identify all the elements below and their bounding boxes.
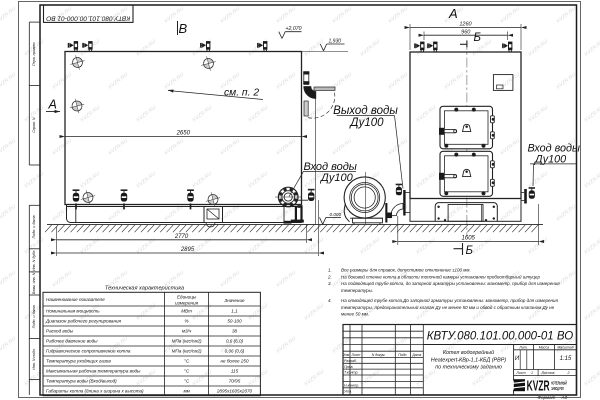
svg-text:Расход воды: Расход воды [46, 329, 74, 334]
svg-text:Масштаб: Масштаб [557, 346, 574, 350]
svg-text:Гидравлическое сопротивление к: Гидравлическое сопротивление котла [46, 349, 131, 354]
svg-text:KVZR: KVZR [527, 377, 550, 394]
svg-text:Ду100: Ду100 [319, 172, 354, 184]
svg-text:Лит.: Лит. [518, 346, 527, 350]
svg-text:Лист: Лист [515, 371, 525, 375]
svg-text:Инв. N подл.: Инв. N подл. [32, 348, 36, 370]
svg-text:2895: 2895 [180, 247, 195, 253]
svg-text:Н.контр.: Н.контр. [344, 383, 359, 387]
svg-text:Heatexpert-КВр-1,1-КБД (РВР): Heatexpert-КВр-1,1-КБД (РВР) [431, 357, 506, 363]
svg-text:ЗАВОД РЭП: ЗАВОД РЭП [551, 386, 564, 391]
svg-text:менее 50 мм.: менее 50 мм. [341, 312, 369, 317]
svg-text:2895х1605х2070: 2895х1605х2070 [216, 389, 253, 394]
svg-text:Лист: Лист [351, 353, 361, 357]
svg-text:И: И [515, 356, 520, 362]
svg-text:1,1: 1,1 [231, 309, 238, 314]
svg-text:Масса: Масса [539, 346, 549, 350]
svg-text:см. п. 2: см. п. 2 [224, 88, 259, 99]
svg-text:На отводящей трубе котла,До за: На отводящей трубе котла,До запорной арм… [341, 297, 558, 303]
svg-text:Дата: Дата [411, 353, 421, 357]
svg-text:1605: 1605 [462, 236, 476, 242]
svg-text:Температура воды (Вход/выход): Температура воды (Вход/выход) [46, 379, 117, 384]
svg-text:2.: 2. [327, 274, 332, 279]
svg-text:Инв. N дубл.: Инв. N дубл. [32, 250, 36, 271]
svg-text:1260: 1260 [459, 22, 472, 28]
svg-text:Изм.: Изм. [343, 353, 350, 357]
svg-text:2650: 2650 [176, 131, 191, 137]
svg-text:Разраб.: Разраб. [344, 359, 357, 363]
svg-text:Подп.: Подп. [398, 353, 407, 357]
svg-text:Диапазон рабочего регулировани: Диапазон рабочего регулирования [45, 319, 122, 324]
svg-text:А: А [448, 6, 458, 21]
svg-text:Подп. и дата: Подп. и дата [32, 215, 36, 238]
svg-text:Котел водогрейный: Котел водогрейный [443, 349, 494, 356]
svg-text:1.: 1. [328, 268, 332, 273]
svg-text:Подп. и дата: Подп. и дата [32, 305, 36, 328]
svg-text:Пров.: Пров. [344, 365, 353, 369]
svg-text:Габариты котла (длина х ширина: Габариты котла (длина х ширина х высота) [46, 389, 144, 394]
svg-text:4.: 4. [328, 298, 332, 303]
svg-text:м3/ч: м3/ч [182, 329, 192, 334]
svg-text:измерения: измерения [175, 300, 199, 305]
svg-text:На подводящей трубе котла, д: На подводящей трубе котла, до запорной а… [341, 280, 560, 286]
svg-text:Максимальная рабочая температу: Максимальная рабочая температура воды [46, 369, 141, 374]
svg-text:1:15: 1:15 [560, 356, 572, 362]
svg-text:0.000: 0.000 [330, 212, 342, 217]
svg-text:Рабочее давление воды: Рабочее давление воды [46, 339, 98, 344]
svg-text:по техническому заданию: по техническому заданию [435, 365, 502, 371]
svg-text:А3: А3 [561, 395, 568, 400]
svg-text:115: 115 [231, 369, 239, 374]
svg-text:Листов: Листов [540, 371, 554, 375]
svg-text:2770: 2770 [174, 234, 189, 240]
svg-text:70/95: 70/95 [229, 379, 241, 384]
svg-text:Взам. инв. N: Взам. инв. N [32, 272, 36, 294]
svg-text:КОТЕЛЬНЫЙ: КОТЕЛЬНЫЙ [551, 378, 567, 385]
svg-text:не более 250: не более 250 [220, 359, 248, 364]
svg-text:°С: °С [184, 369, 190, 374]
svg-text:Б: Б [466, 245, 474, 257]
svg-text:38: 38 [232, 329, 238, 334]
svg-text:Техническая характеристика: Техническая характеристика [105, 285, 184, 291]
svg-text:На боковой стенке котла в обла: На боковой стенке котла в области топочн… [341, 273, 540, 279]
svg-text:МПа (кгс/см2): МПа (кгс/см2) [172, 339, 202, 344]
svg-text:температуры, предохранительный: температуры, предохранительный клапан Ду… [341, 304, 555, 310]
svg-text:0,06 (0,6): 0,06 (0,6) [225, 349, 245, 354]
svg-text:В: В [179, 21, 188, 36]
svg-text:°С: °С [184, 379, 190, 384]
svg-text:Наименование показателя: Наименование показателя [46, 297, 105, 302]
svg-text:МВт: МВт [181, 309, 192, 314]
svg-text:2: 2 [567, 371, 570, 375]
svg-text:%: % [185, 319, 189, 324]
svg-text:50-100: 50-100 [227, 319, 242, 324]
svg-text:КВТУ.080.101.00.000-01 ВО: КВТУ.080.101.00.000-01 ВО [46, 14, 130, 21]
svg-text:N докум.: N докум. [372, 353, 386, 357]
svg-text:3.: 3. [328, 281, 332, 286]
svg-text:Все размеры для справок, допус: Все размеры для справок, допустимое откл… [341, 268, 471, 273]
svg-text:Номинальная мощность: Номинальная мощность [46, 309, 100, 314]
svg-text:Формат: Формат [538, 395, 556, 400]
svg-text:Значение: Значение [224, 298, 245, 303]
svg-text:1: 1 [531, 371, 533, 375]
svg-text:МПа (кгс/см2): МПа (кгс/см2) [172, 349, 202, 354]
svg-text:1,930: 1,930 [329, 39, 342, 45]
svg-text:А: А [48, 98, 57, 112]
svg-text:мм: мм [183, 389, 190, 394]
svg-text:Ду100: Ду100 [348, 117, 384, 129]
svg-text:температуры.: температуры. [341, 288, 373, 293]
svg-text:КВТУ.080.101.00.000-01 ВО: КВТУ.080.101.00.000-01 ВО [427, 331, 574, 343]
svg-text:Температура уходящих газов: Температура уходящих газов [46, 359, 111, 364]
svg-text:+2,070: +2,070 [286, 26, 302, 32]
svg-text:°С: °С [184, 359, 190, 364]
svg-text:Единицы: Единицы [177, 295, 197, 300]
svg-text:960: 960 [461, 29, 471, 35]
svg-text:Т.контр.: Т.контр. [344, 371, 359, 375]
svg-text:Б: Б [474, 32, 482, 44]
svg-text:Справ. N: Справ. N [32, 117, 36, 133]
svg-text:Перв. примен.: Перв. примен. [32, 42, 36, 67]
svg-text:Утв.: Утв. [344, 389, 352, 393]
svg-text:0,6 (6,0): 0,6 (6,0) [226, 339, 244, 344]
